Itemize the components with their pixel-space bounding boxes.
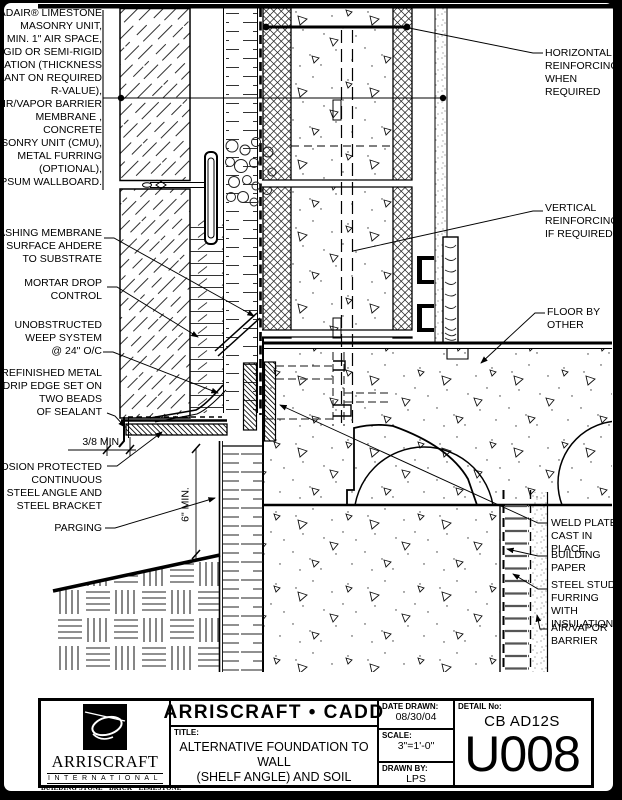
weld-plate bbox=[265, 362, 276, 441]
date-drawn-value: 08/30/04 bbox=[379, 711, 453, 723]
interior-finish bbox=[417, 8, 458, 344]
z-furring-clip bbox=[417, 256, 434, 284]
callout-building-paper: BUILDING PAPER bbox=[551, 549, 621, 575]
callout-mortar-drop: MORTAR DROP CONTROL bbox=[0, 277, 102, 303]
title-block-logo-cell: ARRISCRAFT INTERNATIONAL BUILDING STONE … bbox=[41, 701, 171, 785]
callout-drip-edge: PREFINISHED METAL DRIP EDGE SET ON TWO B… bbox=[0, 367, 102, 419]
steel-bracket bbox=[244, 363, 257, 430]
title-block-data: DATE DRAWN: 08/30/04 SCALE: 3"=1'-0" DRA… bbox=[379, 701, 455, 785]
callout-air-vapor-barrier: AIR/VAPOR BARRIER bbox=[551, 622, 621, 648]
callout-flashing-membrane: FLASHING MEMBRANE SURFACE AHDERE TO SUBS… bbox=[0, 227, 102, 266]
callout-floor-by-other: FLOOR BY OTHER bbox=[547, 306, 617, 332]
drawn-by-label: DRAWN BY: bbox=[379, 763, 453, 773]
detail-no-label: DETAIL No: bbox=[455, 701, 589, 711]
drawn-by-value: LPS bbox=[379, 773, 453, 785]
steel-stud-furring bbox=[505, 496, 529, 672]
steel-angle bbox=[126, 424, 227, 435]
dim-gap-label: 3/8 MIN. bbox=[52, 436, 122, 449]
title-label: TITLE: bbox=[171, 727, 377, 737]
scale-value: 3"=1'-0" bbox=[379, 740, 453, 752]
logo-tagline: BUILDING STONE · BRICK · LIMESTONE bbox=[41, 785, 169, 792]
title-block: ARRISCRAFT INTERNATIONAL BUILDING STONE … bbox=[38, 698, 594, 788]
callout-vertical-reinforcing: VERTICAL REINFORCING IF REQUIRED bbox=[545, 202, 620, 241]
title-block-center: ARRISCRAFT • CADD TITLE: ALTERNATIVE FOU… bbox=[171, 701, 379, 785]
title-block-detail: DETAIL No: CB AD12S U008 bbox=[455, 701, 589, 785]
detail-number: U008 bbox=[455, 728, 589, 780]
drawing-canvas: ADAIR® LIMESTONE MASONRY UNIT, MIN. 1" A… bbox=[0, 0, 622, 800]
drawing-title-line1: ALTERNATIVE FOUNDATION TO WALL bbox=[171, 740, 377, 770]
callout-horizontal-reinforcing: HORIZONTAL REINFORCING WHEN REQUIRED bbox=[545, 47, 620, 99]
parging-hatch bbox=[223, 448, 263, 672]
callout-parging: PARGING bbox=[2, 522, 102, 535]
date-drawn-label: DATE DRAWN: bbox=[379, 701, 453, 711]
logo-subtitle: INTERNATIONAL bbox=[47, 773, 163, 784]
drawing-title-line2: (SHELF ANGLE) AND SOIL bbox=[171, 770, 377, 785]
brand-title: ARRISCRAFT • CADD bbox=[171, 701, 377, 727]
dim-height-label: 6" MIN. bbox=[180, 483, 193, 527]
materials-note: ADAIR® LIMESTONE MASONRY UNIT, MIN. 1" A… bbox=[0, 7, 102, 189]
z-furring-clip bbox=[417, 304, 434, 332]
logo-name: ARRISCRAFT bbox=[41, 752, 169, 772]
detail-sheet: ADAIR® LIMESTONE MASONRY UNIT, MIN. 1" A… bbox=[0, 0, 622, 800]
scale-label: SCALE: bbox=[379, 730, 453, 740]
arriscraft-logo-icon bbox=[83, 704, 127, 750]
callout-weep-system: UNOBSTRUCTED WEEP SYSTEM @ 24" O/C bbox=[0, 319, 102, 358]
callout-steel-angle: CORROSION PROTECTED CONTINUOUS STEEL ANG… bbox=[0, 461, 102, 513]
soil-grade bbox=[53, 555, 220, 672]
